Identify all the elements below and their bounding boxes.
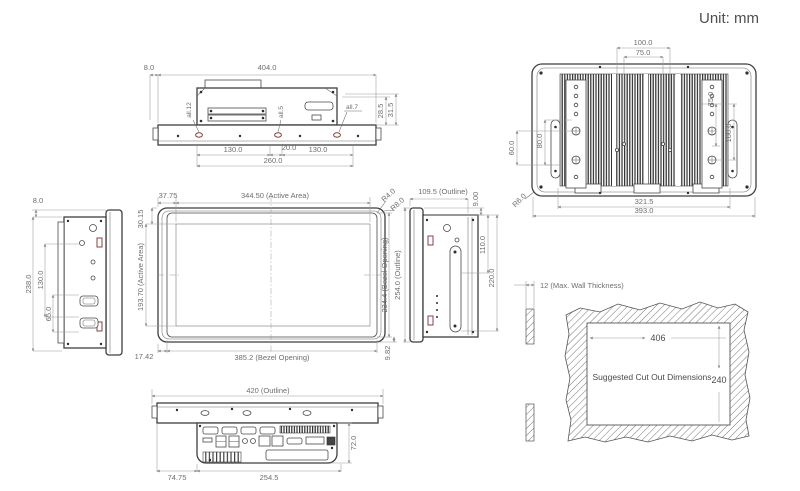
right-latch xyxy=(428,236,433,245)
top-heatsink-comb xyxy=(205,80,261,88)
bottom-dim-span: 254.5 xyxy=(260,473,279,482)
cutout-diagram: 12 (Max. Wall Thickness) 406 240 Suggest… xyxy=(514,281,750,442)
top-hole-callout-left: all.12 xyxy=(186,102,193,118)
drawing-canvas: Unit: mm all.12 all.5 all.7 xyxy=(0,0,800,491)
front-dim-margin-left: 37.75 xyxy=(159,191,178,200)
bottom-view: 420 (Outline) 72.0 74.75 254.5 xyxy=(152,386,383,482)
top-bezel xyxy=(158,125,376,145)
right-dim-depth: 109.5 (Outline) xyxy=(418,187,468,196)
rear-dim-right-inner: 100.0 xyxy=(724,124,733,143)
top-hole-callout-mid: all.5 xyxy=(278,106,285,118)
right-dim-span: 220.0 xyxy=(487,269,496,288)
bottom-vga-port xyxy=(287,438,302,444)
front-outline xyxy=(158,208,385,342)
top-dim-span-left: 130.0 xyxy=(224,145,243,154)
cutout-wall-section-lower xyxy=(526,404,534,441)
left-serial-port xyxy=(80,296,98,306)
top-mount-stud xyxy=(275,133,282,137)
bottom-bezel-tab-left xyxy=(152,406,157,418)
right-bezel xyxy=(410,208,423,342)
right-dim-slot: 110.0 xyxy=(478,236,487,254)
top-dim-depth2: 31.5 xyxy=(386,103,395,118)
left-dim-low: 65.0 xyxy=(44,307,53,322)
cutout-dim-width: 406 xyxy=(650,333,665,343)
top-connector-opening xyxy=(305,102,333,110)
rear-dim-top-inner: 75.0 xyxy=(636,48,651,57)
cutout-wall-section-upper xyxy=(526,309,534,344)
top-mount-stud xyxy=(196,133,203,137)
top-dim-width: 404.0 xyxy=(258,63,277,72)
front-dim-active-height: 193.70 (Active Area) xyxy=(136,243,145,311)
bottom-power-terminal xyxy=(327,437,335,445)
rear-dim-top-outer: 100.0 xyxy=(634,38,653,47)
top-dim-span-mid: 20.0 xyxy=(282,143,297,152)
front-dim-margin-top: 30.15 xyxy=(136,210,145,229)
bottom-bezel xyxy=(157,403,378,423)
bottom-dim-height: 72.0 xyxy=(349,436,358,451)
top-view: all.12 all.5 all.7 8.0 404.0 28.5 31.5 1… xyxy=(144,63,399,167)
rear-dim-radius: R6.0 xyxy=(510,191,528,209)
right-dim-top-offset: 9.00 xyxy=(471,192,480,207)
top-dim-span-total: 260.0 xyxy=(264,156,283,165)
unit-label: Unit: mm xyxy=(699,10,759,27)
rear-dim-left-inner: 80.0 xyxy=(535,134,544,149)
rear-view: 100.0 75.0 60.0 80.0 75.0 100.0 321.5 39… xyxy=(507,38,756,218)
bottom-serial-port xyxy=(203,427,218,434)
bottom-lan-port xyxy=(259,436,270,446)
left-bezel xyxy=(106,210,122,355)
left-rear-rail xyxy=(58,222,64,343)
right-latch xyxy=(428,316,433,325)
rear-dim-width-inner: 321.5 xyxy=(635,197,654,206)
bottom-lan-port xyxy=(272,436,283,446)
front-dim-bottom-right: 9.82 xyxy=(383,346,392,361)
left-serial-port xyxy=(80,318,98,328)
rear-dim-left-upper: 60.0 xyxy=(507,141,516,156)
top-mount-stud xyxy=(334,133,341,137)
right-dim-outline-height: 254.0 (Outline) xyxy=(393,250,402,300)
front-dim-bezel-width: 385.2 (Bezel Opening) xyxy=(234,353,310,362)
front-dim-bezel-height: 234.4 (Bezel Opening) xyxy=(380,237,389,313)
bottom-vent-strip xyxy=(280,426,330,433)
cutout-title: Suggested Cut Out Dimensions xyxy=(592,372,711,382)
top-bezel-tab-right xyxy=(376,128,381,140)
left-side-view: 8.0 238.0 130.0 65.0 xyxy=(24,196,122,355)
bottom-dim-offset: 74.75 xyxy=(168,473,187,482)
rear-foot xyxy=(634,184,660,193)
top-vesa-rail xyxy=(208,115,266,121)
left-dim-mid: 130.0 xyxy=(36,271,45,290)
bottom-serial-port xyxy=(241,427,256,434)
left-latch xyxy=(97,238,102,247)
bottom-bezel-tab-right xyxy=(378,406,383,418)
right-mount-slot xyxy=(450,246,461,332)
top-connector-small xyxy=(312,115,321,120)
front-dim-bottom-left: 17.42 xyxy=(135,352,154,361)
rear-dim-right-upper: 75.0 xyxy=(706,92,715,107)
cutout-dim-height: 240 xyxy=(711,375,726,385)
bottom-expansion-slot xyxy=(266,450,328,460)
top-dim-left: 8.0 xyxy=(144,63,154,72)
right-side-view: 109.5 (Outline) 9.00 110.0 220.0 254.0 (… xyxy=(393,187,499,342)
front-view: 37.75 344.50 (Active Area) R4.0 R8.0 30.… xyxy=(135,186,407,362)
rear-mount-slot-left xyxy=(551,120,560,178)
top-dim-depth1: 28.5 xyxy=(376,104,385,119)
front-dim-active-width: 344.50 (Active Area) xyxy=(241,191,309,200)
left-dim-height: 238.0 xyxy=(24,275,33,294)
technical-drawing: Unit: mm all.12 all.5 all.7 xyxy=(0,0,800,491)
bottom-serial-port xyxy=(260,427,275,434)
cutout-wall-thickness-label: 12 (Max. Wall Thickness) xyxy=(540,281,624,290)
bottom-dvi-port xyxy=(306,437,324,444)
top-vesa-rail xyxy=(208,108,266,114)
bottom-usb-port xyxy=(203,438,212,442)
top-hole-callout-right: all.7 xyxy=(346,104,358,111)
left-dim-top: 8.0 xyxy=(33,196,43,205)
bottom-heatsink-comb xyxy=(203,452,241,462)
bottom-serial-port xyxy=(222,427,237,434)
top-dim-span-right: 130.0 xyxy=(309,145,328,154)
top-bezel-tab-left xyxy=(153,128,158,140)
rear-dim-width-outer: 393.0 xyxy=(635,206,654,215)
bottom-dim-outline-width: 420 (Outline) xyxy=(246,386,290,395)
